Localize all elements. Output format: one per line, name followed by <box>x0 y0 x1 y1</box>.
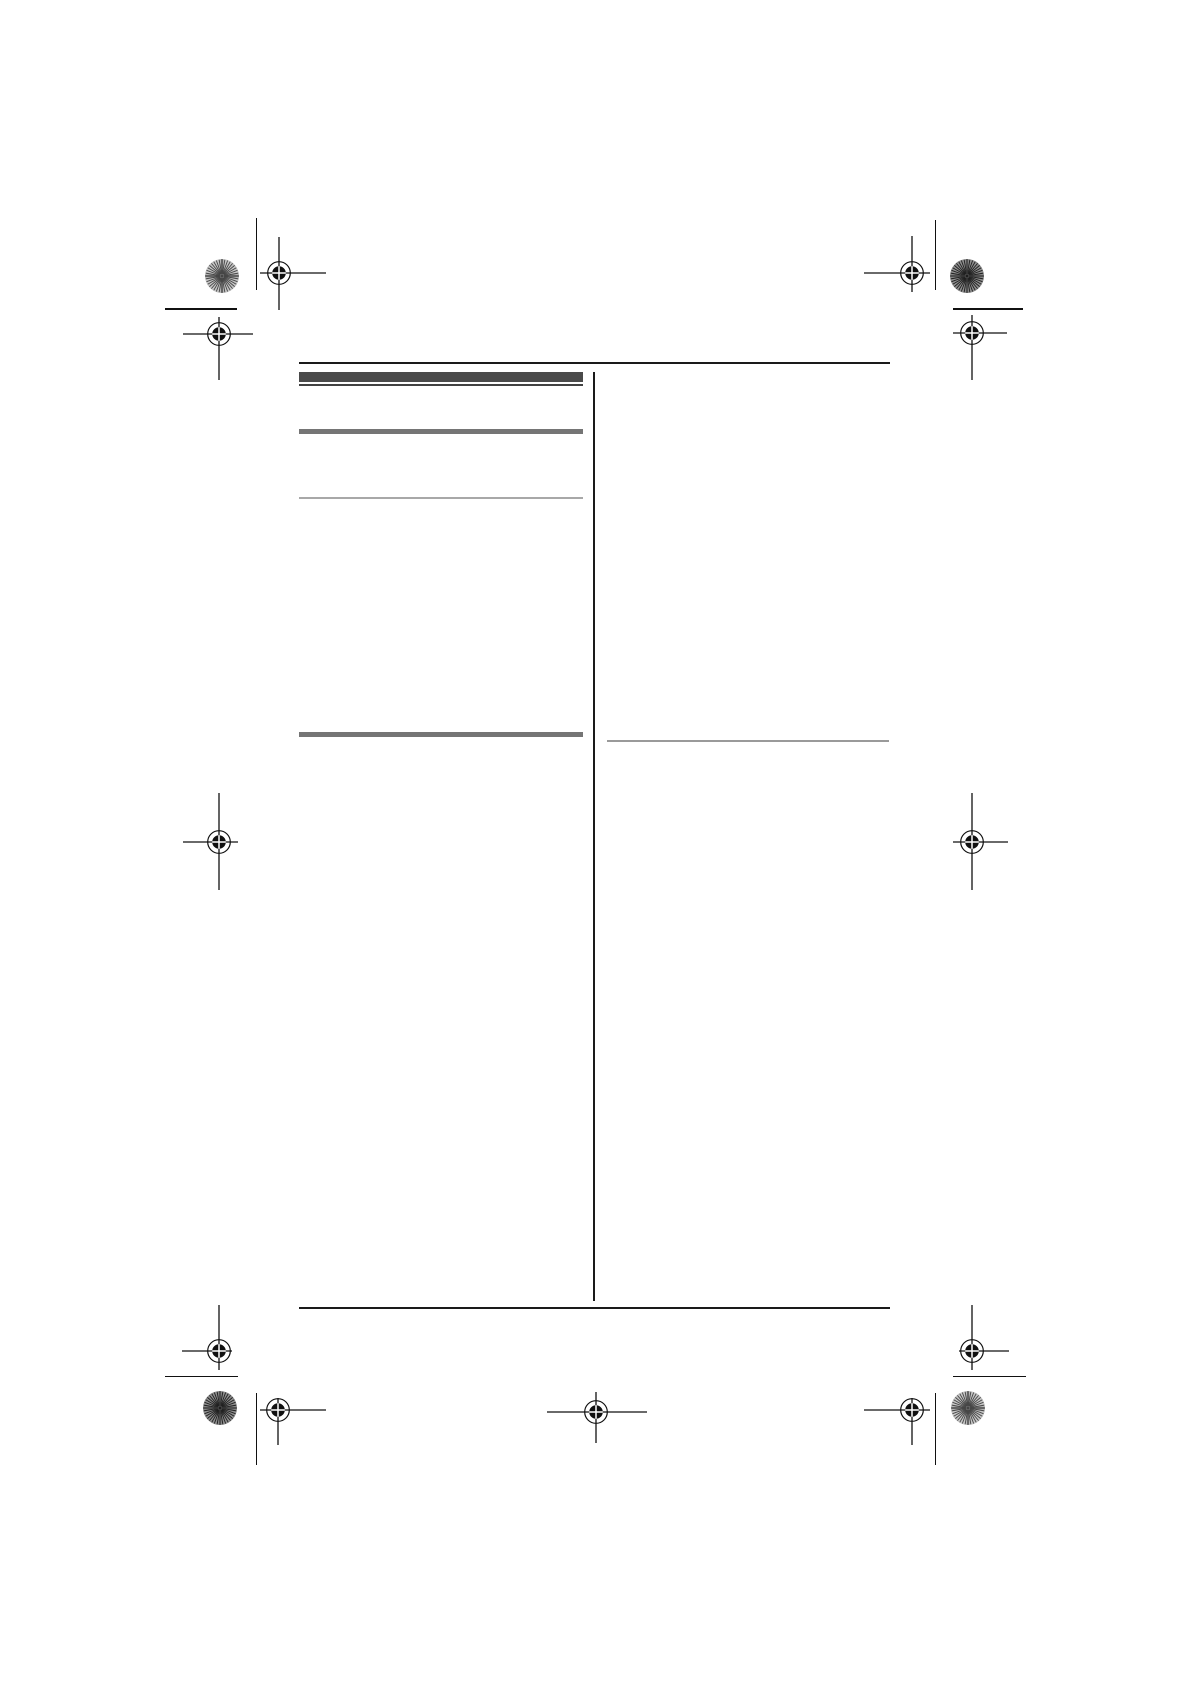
section-header-underline <box>299 384 583 386</box>
reg-mark-bottom-center <box>547 1392 647 1443</box>
bottom-rule <box>299 1307 890 1309</box>
manual-page <box>0 0 1190 1684</box>
pinwheel-target-top-left <box>204 258 240 294</box>
trim-mark-top-right-v <box>935 220 936 290</box>
trim-mark-bottom-right-v <box>935 1393 936 1465</box>
reg-mark-bottom-left-outer <box>182 1305 232 1370</box>
reg-mark-top-left-outer <box>183 317 253 380</box>
column-divider <box>593 372 595 1302</box>
trim-mark-bottom-left-h <box>165 1376 238 1377</box>
pinwheel-target-bottom-right <box>950 1390 986 1426</box>
trim-mark-top-left-v <box>256 218 257 290</box>
reg-mark-top-left-inner <box>260 237 326 310</box>
light-rule-left <box>299 497 583 499</box>
reg-mark-bottom-right-inner <box>864 1398 930 1445</box>
top-rule <box>299 362 890 364</box>
reg-mark-top-right-outer <box>953 315 1007 380</box>
reg-mark-bottom-right-outer <box>959 1305 1009 1370</box>
reg-mark-middle-right <box>953 793 1008 890</box>
light-rule-right <box>607 740 889 742</box>
subsection-bar-gray <box>299 732 583 737</box>
reg-mark-middle-left <box>183 793 238 890</box>
pinwheel-target-top-right <box>949 258 985 294</box>
trim-mark-bottom-right-h <box>953 1376 1026 1377</box>
subsection-bar-gray <box>299 429 583 434</box>
trim-mark-bottom-left-v <box>256 1393 257 1465</box>
trim-mark-top-left-h <box>165 308 237 309</box>
reg-mark-bottom-left-inner <box>260 1398 326 1445</box>
trim-mark-top-right-h <box>953 308 1023 309</box>
pinwheel-target-bottom-left <box>202 1390 238 1426</box>
reg-mark-top-right-inner <box>864 236 930 292</box>
section-header-bar-dark <box>299 372 583 382</box>
